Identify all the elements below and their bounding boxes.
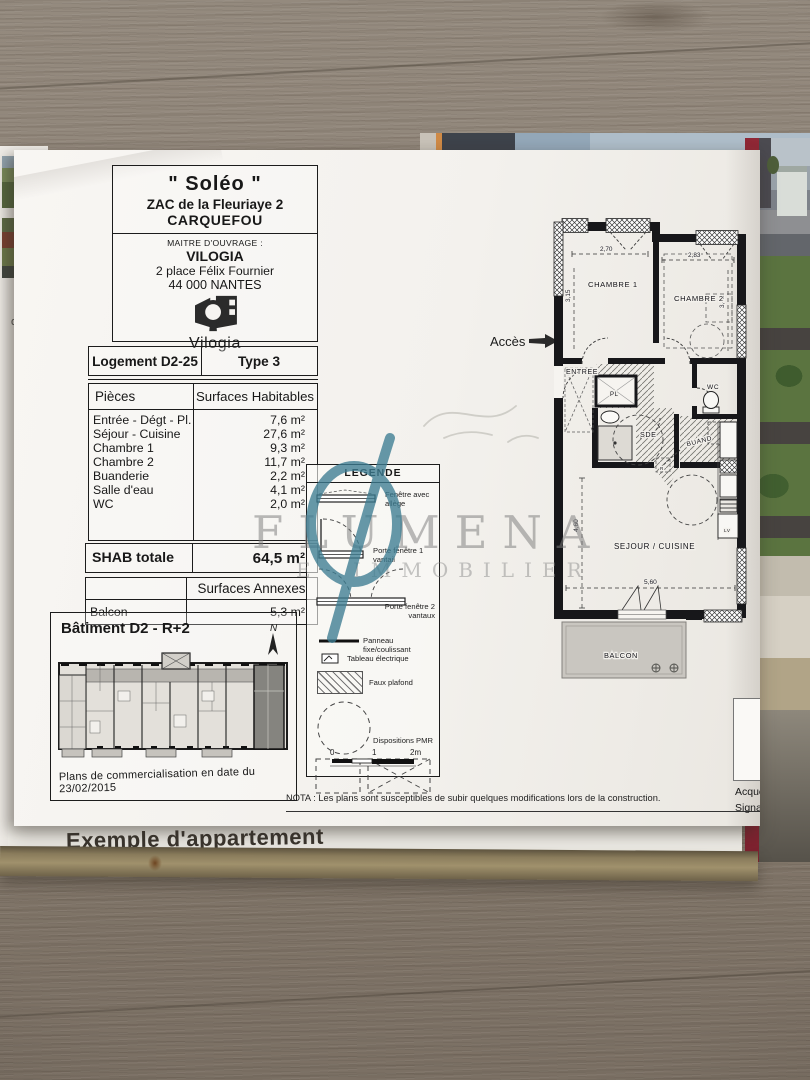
dim-chambre2-width: 2,83 [688, 252, 701, 259]
room-area: 11,7 m² [207, 455, 317, 469]
room-label-wc: WC [707, 384, 719, 391]
table-row: WC 2,0 m² [89, 497, 317, 511]
fixed-panel-symbol [319, 637, 359, 645]
header-box: " Soléo " ZAC de la Fleuriaye 2 CARQUEFO… [112, 165, 318, 342]
table-row: Entrée - Dégt - Pl. 7,6 m² [89, 413, 317, 427]
entree-closet [565, 368, 593, 432]
right-page-band-3 [759, 658, 810, 710]
room-area: 4,1 m² [207, 483, 317, 497]
photo-of-floorplan-brochure: { "page": { "bottom_text": "Exemple d'ap… [0, 0, 810, 1080]
cell-divider [186, 578, 187, 599]
vilogia-logo [113, 293, 317, 338]
surfaces-table: Pièces Surfaces Habitables Entrée - Dégt… [88, 383, 318, 541]
acces-callout: Accès [490, 332, 559, 350]
room-label-chambre1: CHAMBRE 1 [588, 280, 638, 289]
legend-item-label: Porte fenêtre 1 vantail [373, 547, 435, 564]
scale-2: 2m [410, 748, 421, 757]
room-label: Salle d'eau [89, 483, 207, 497]
maitre-ouvrage-address1: 2 place Félix Fournier [113, 264, 317, 278]
col-surfaces-habitables: Surfaces Habitables [193, 389, 317, 404]
window-symbol [315, 489, 379, 507]
room-label-balcon: BALCON [604, 651, 638, 660]
right-page-aerial-render [759, 256, 810, 556]
unit-lot: Logement D2-25 [89, 354, 201, 369]
signature-line-acquereur: Acquéreur [735, 786, 760, 798]
project-city: CARQUEFOU [113, 212, 317, 228]
right-page-band-4 [759, 710, 810, 862]
right-page-street-photo [759, 138, 810, 256]
legend-title: LEGENDE [307, 465, 439, 483]
balcony [562, 586, 686, 678]
door-window-1-symbol [317, 513, 375, 561]
surfaces-header-row: Pièces Surfaces Habitables [89, 384, 317, 410]
legend-item-label: Faux plafond [369, 679, 435, 688]
room-label-sejour: SEJOUR / CUISINE [614, 542, 695, 551]
shab-value: 64,5 m² [192, 550, 317, 567]
wood-plank-seam [0, 39, 810, 91]
room-label: Chambre 1 [89, 441, 207, 455]
shab-total-row: SHAB totale 64,5 m² [85, 543, 318, 573]
pencil-scribble [412, 382, 562, 452]
room-label-sde: SDE [640, 430, 657, 439]
tree-shape [767, 156, 779, 174]
dim-sejour-width: 5,60 [644, 579, 657, 586]
legend-item-label: Panneau fixe/coulissant [363, 637, 437, 654]
right-page-band-2 [759, 596, 810, 658]
scale-1: 1 [372, 748, 377, 757]
right-page-band-1 [759, 556, 810, 596]
cell-divider [192, 544, 193, 572]
commercialisation-caption: Plans de commercialisation en date du 23… [59, 765, 297, 796]
shab-label: SHAB totale [86, 550, 192, 566]
false-ceiling-symbol [317, 671, 363, 694]
folder-stain [148, 855, 162, 871]
table-row: Séjour - Cuisine 27,6 m² [89, 427, 317, 441]
cell-divider [201, 347, 202, 375]
room-label: Entrée - Dégt - Pl. [89, 413, 207, 427]
floorplan-sheet: " Soléo " ZAC de la Fleuriaye 2 CARQUEFO… [14, 150, 760, 826]
col-pieces: Pièces [89, 389, 193, 404]
acces-label: Accès [490, 334, 525, 349]
table-row: Buanderie 2,2 m² [89, 469, 317, 483]
project-subtitle: ZAC de la Fleuriaye 2 [113, 197, 317, 212]
room-label-pl: PL [610, 392, 619, 398]
legend-item-label: Dispositions PMR [373, 737, 437, 746]
nota-text: NOTA : Les plans sont susceptibles de su… [286, 793, 756, 803]
legend-item-label: Tableau électrique [347, 655, 437, 664]
room-label: Buanderie [89, 469, 207, 483]
room-area: 27,6 m² [207, 427, 317, 441]
room-label: WC [89, 497, 207, 511]
annexes-header-row: Surfaces Annexes [85, 577, 318, 600]
toilet-fixture [703, 392, 719, 414]
room-label-lv: LV [724, 528, 731, 533]
vilogia-logo-icon [187, 293, 243, 333]
table-divider [193, 384, 194, 540]
unit-type: Type 3 [201, 354, 317, 369]
nota-rule [286, 811, 760, 812]
maitre-ouvrage-name: VILOGIA [113, 248, 317, 264]
legend-item-label: Fenêtre avec allège [385, 491, 437, 508]
building-plan-drawing [56, 651, 290, 763]
dim-sejour-height: 4,60 [573, 519, 580, 532]
room-label: Chambre 2 [89, 455, 207, 469]
north-letter: N [270, 623, 278, 634]
double-rule [88, 379, 318, 380]
maitre-ouvrage-label: MAITRE D'OUVRAGE : [113, 238, 317, 248]
wood-knot [600, 0, 710, 34]
legend-box: LEGENDE Fenêtre avec allège Porte fenêtr… [306, 464, 440, 777]
unit-row: Logement D2-25 Type 3 [88, 346, 318, 376]
table-row: Chambre 2 11,7 m² [89, 455, 317, 469]
dim-chambre1-width: 2,70 [600, 246, 613, 253]
pmr-circle [667, 475, 717, 525]
scale-0: 0 [330, 748, 335, 757]
room-area: 7,6 m² [207, 413, 317, 427]
room-label-entree: ENTREE [566, 369, 598, 376]
maitre-ouvrage-address2: 44 000 NANTES [113, 278, 317, 292]
table-row: Chambre 1 9,3 m² [89, 441, 317, 455]
header-divider [113, 233, 317, 234]
room-label: Séjour - Cuisine [89, 427, 207, 441]
wood-plank-seam [0, 967, 810, 1019]
room-label-r: R [660, 466, 664, 471]
dim-chambre1-height: 3,15 [565, 289, 572, 302]
electric-panel-symbol [321, 653, 339, 664]
apartment-floorplan: 2,70 2,83 3,15 3,42 4,60 5,60 CHAMBRE 1 … [552, 210, 752, 702]
room-area: 2,0 m² [207, 497, 317, 511]
project-title: " Soléo " [113, 173, 317, 196]
room-area: 9,3 m² [207, 441, 317, 455]
table-row: Salle d'eau 4,1 m² [89, 483, 317, 497]
folder-gold-band [0, 846, 758, 881]
annexes-title: Surfaces Annexes [186, 581, 317, 596]
building-shape [759, 138, 771, 208]
bus-shape [777, 166, 807, 216]
batiment-box: Bâtiment D2 - R+2 N Pla [50, 612, 297, 801]
scale-bar: 0 1 2m [316, 746, 436, 772]
legend-item-label: Porte fenêtre 2 vantaux [373, 603, 435, 620]
signature-box [733, 698, 760, 781]
room-area: 2,2 m² [207, 469, 317, 483]
room-label-chambre2: CHAMBRE 2 [674, 294, 724, 303]
batiment-title: Bâtiment D2 - R+2 [61, 620, 190, 637]
signature-line-signature: Signature [735, 802, 760, 814]
